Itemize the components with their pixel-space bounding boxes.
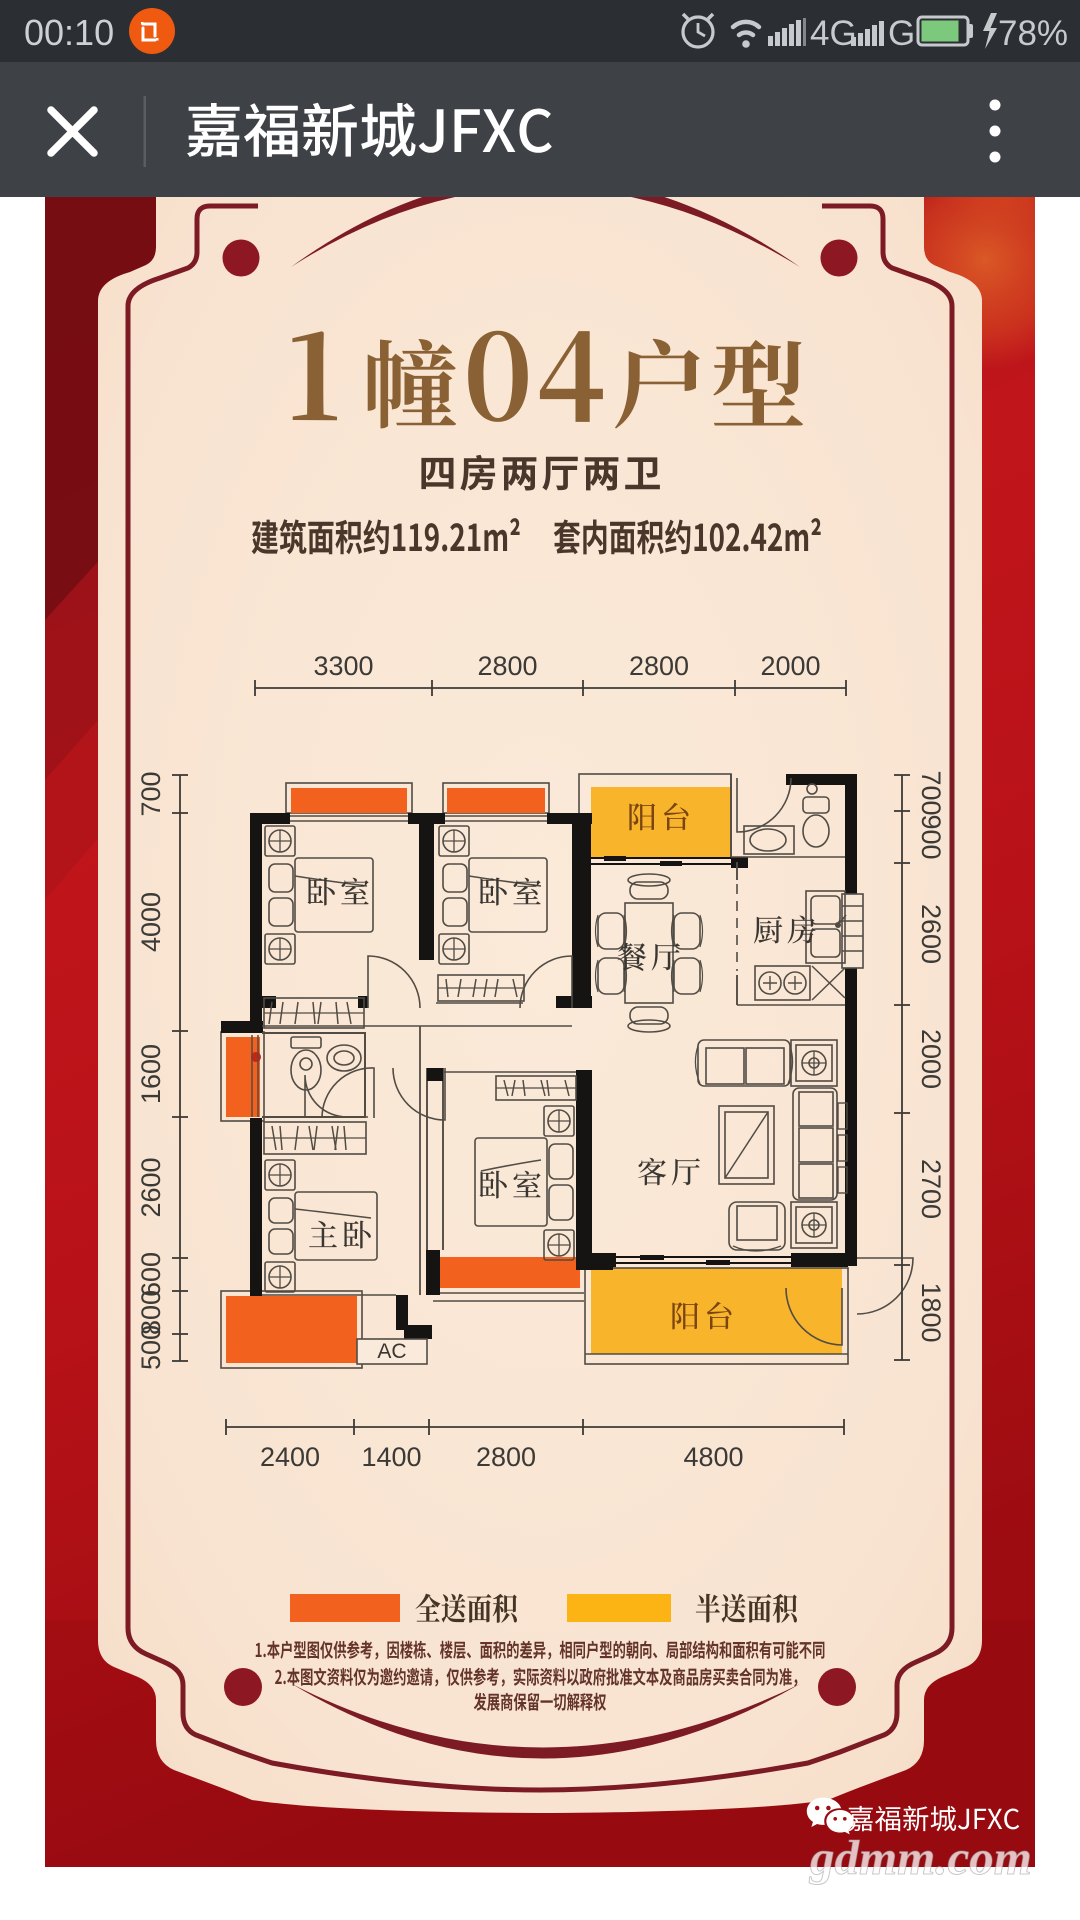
svg-text:2600: 2600: [916, 904, 946, 964]
svg-text:1600: 1600: [136, 1044, 166, 1104]
svg-text:2800: 2800: [476, 1442, 536, 1472]
svg-text:900: 900: [916, 814, 946, 859]
svg-text:00:10: 00:10: [24, 12, 114, 53]
svg-text:2700: 2700: [916, 1159, 946, 1219]
svg-text:G: G: [888, 14, 915, 53]
svg-text:1400: 1400: [361, 1442, 421, 1472]
svg-text:gdmm.com: gdmm.com: [809, 1830, 1032, 1885]
svg-text:700: 700: [136, 771, 166, 816]
svg-text:AC: AC: [377, 1340, 406, 1363]
svg-text:500: 500: [136, 1325, 166, 1370]
svg-text:2800: 2800: [477, 651, 537, 681]
svg-text:2800: 2800: [629, 651, 689, 681]
svg-text:2400: 2400: [260, 1442, 320, 1472]
svg-text:78%: 78%: [998, 14, 1068, 53]
svg-text:2600: 2600: [136, 1157, 166, 1217]
svg-text:4800: 4800: [683, 1442, 743, 1472]
svg-text:2000: 2000: [916, 1029, 946, 1089]
svg-text:4000: 4000: [136, 892, 166, 952]
svg-text:4G: 4G: [810, 14, 857, 53]
svg-text:2000: 2000: [760, 651, 820, 681]
svg-text:700: 700: [916, 770, 946, 815]
svg-text:1800: 1800: [916, 1282, 946, 1342]
svg-text:3300: 3300: [313, 651, 373, 681]
